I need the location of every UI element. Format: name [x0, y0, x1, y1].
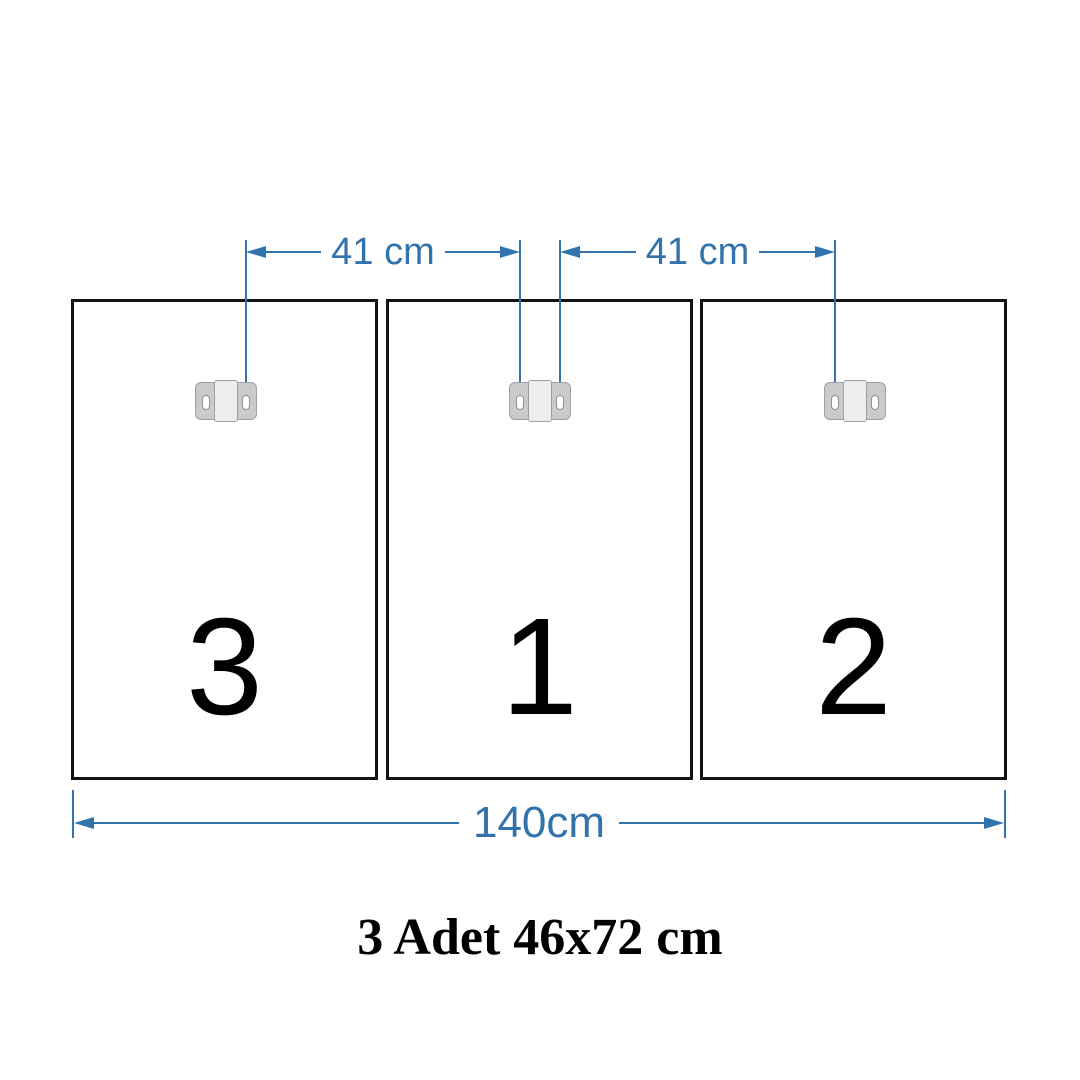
- arrowhead-right-icon: [984, 817, 1004, 829]
- dimension-line: [266, 251, 321, 253]
- bracket-slot: [556, 395, 564, 410]
- dimension-end-tick: [1004, 790, 1006, 838]
- dimension-line: [445, 251, 500, 253]
- dimension-label: 140cm: [473, 801, 605, 845]
- arrowhead-left-icon: [74, 817, 94, 829]
- bracket-body: [214, 380, 238, 422]
- bracket-slot: [242, 395, 250, 410]
- dimension-line: [94, 822, 459, 824]
- arrowhead-left-icon: [560, 246, 580, 258]
- bracket-slot: [871, 395, 879, 410]
- mounting-bracket: [824, 382, 886, 420]
- panel-3: 3: [71, 299, 378, 780]
- dimension-spacing-right: 41 cm: [560, 233, 835, 271]
- arrowhead-right-icon: [500, 246, 520, 258]
- hanging-layout-diagram: 3 1 2 41 cm 41 cm: [0, 0, 1080, 1080]
- bracket-body: [843, 380, 867, 422]
- dimension-line: [759, 251, 815, 253]
- panel-number: 1: [389, 598, 690, 736]
- panel-number: 3: [74, 598, 375, 736]
- dimension-spacing-left: 41 cm: [246, 233, 520, 271]
- size-caption: 3 Adet 46x72 cm: [0, 912, 1080, 964]
- dimension-line: [619, 822, 984, 824]
- dimension-total-width: 140cm: [74, 801, 1004, 845]
- panel-1: 1: [386, 299, 693, 780]
- arrowhead-left-icon: [246, 246, 266, 258]
- panel-2: 2: [700, 299, 1007, 780]
- dimension-label: 41 cm: [646, 233, 749, 271]
- dimension-line: [580, 251, 636, 253]
- bracket-slot: [516, 395, 524, 410]
- mounting-bracket: [509, 382, 571, 420]
- mounting-bracket: [195, 382, 257, 420]
- bracket-slot: [831, 395, 839, 410]
- arrowhead-right-icon: [815, 246, 835, 258]
- bracket-slot: [202, 395, 210, 410]
- bracket-body: [528, 380, 552, 422]
- dimension-label: 41 cm: [331, 233, 434, 271]
- panel-number: 2: [703, 598, 1004, 736]
